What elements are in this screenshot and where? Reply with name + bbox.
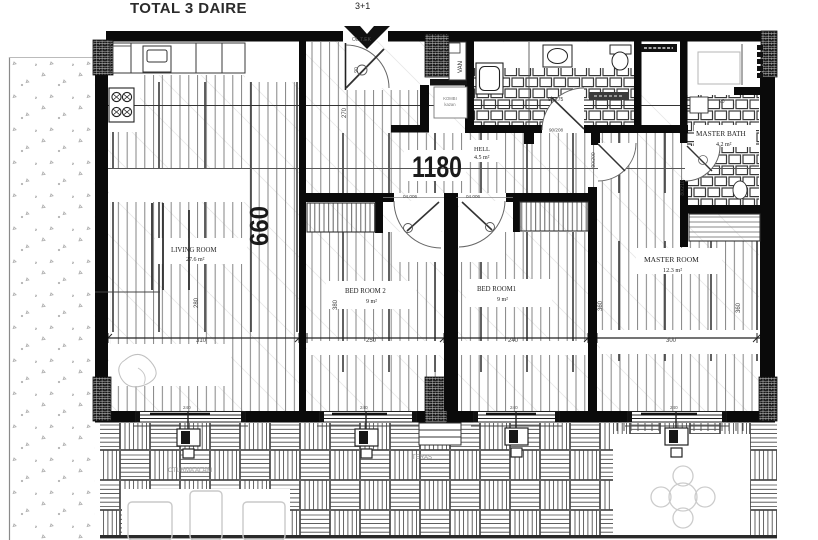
svg-text:kazan: kazan: [444, 102, 456, 107]
svg-text:240: 240: [508, 338, 519, 344]
svg-text:20: 20: [719, 99, 725, 105]
svg-text:VAN: VAN: [458, 61, 464, 73]
svg-text:MASTER ROOM: MASTER ROOM: [644, 255, 699, 264]
svg-text:3+1: 3+1: [355, 1, 370, 11]
svg-text:660: 660: [244, 206, 274, 246]
svg-text:360: 360: [736, 302, 742, 313]
svg-text:KOMBI: KOMBI: [443, 96, 457, 101]
svg-text:380: 380: [333, 299, 339, 310]
svg-text:90/200: 90/200: [591, 152, 597, 168]
svg-text:250: 250: [366, 338, 377, 344]
svg-text:BED ROOM1: BED ROOM1: [477, 286, 516, 293]
svg-text:TOTAL 3 DAIRE: TOTAL 3 DAIRE: [130, 0, 247, 17]
svg-text:1180: 1180: [412, 151, 462, 184]
svg-text:90/208: 90/208: [549, 128, 563, 133]
svg-text:04.006: 04.006: [403, 194, 417, 199]
svg-text:270: 270: [342, 107, 348, 118]
svg-text:4.5 m²: 4.5 m²: [474, 155, 490, 161]
svg-text:4.2 m²: 4.2 m²: [716, 142, 732, 148]
svg-text:300: 300: [666, 338, 677, 344]
svg-text:MASTER BATH: MASTER BATH: [696, 130, 746, 138]
svg-text:280: 280: [194, 297, 200, 308]
svg-text:9 m²: 9 m²: [366, 299, 377, 305]
svg-text:04.006: 04.006: [466, 194, 480, 199]
svg-text:OL.7.EK: OL.7.EK: [352, 37, 372, 43]
svg-text:310: 310: [196, 338, 207, 344]
svg-text:360: 360: [598, 300, 604, 311]
svg-text:240: 240: [670, 405, 678, 410]
svg-text:12.3 m²: 12.3 m²: [663, 267, 682, 274]
svg-text:LIVING ROOM: LIVING ROOM: [171, 247, 217, 254]
svg-text:80/210: 80/210: [680, 180, 686, 196]
svg-text:96 275: 96 275: [548, 97, 564, 103]
svg-text:9 m²: 9 m²: [497, 297, 508, 303]
svg-text:240: 240: [183, 405, 191, 410]
svg-text:27.6 m²: 27.6 m²: [186, 257, 205, 263]
svg-text:OTURMA ALANI: OTURMA ALANI: [168, 468, 213, 474]
svg-text:240: 240: [360, 405, 368, 410]
svg-text:240: 240: [510, 405, 518, 410]
svg-text:BED ROOM 2: BED ROOM 2: [345, 288, 386, 295]
svg-text:90: 90: [354, 67, 360, 73]
svg-text:TERAS: TERAS: [412, 455, 432, 461]
svg-text:HELL: HELL: [474, 146, 490, 153]
